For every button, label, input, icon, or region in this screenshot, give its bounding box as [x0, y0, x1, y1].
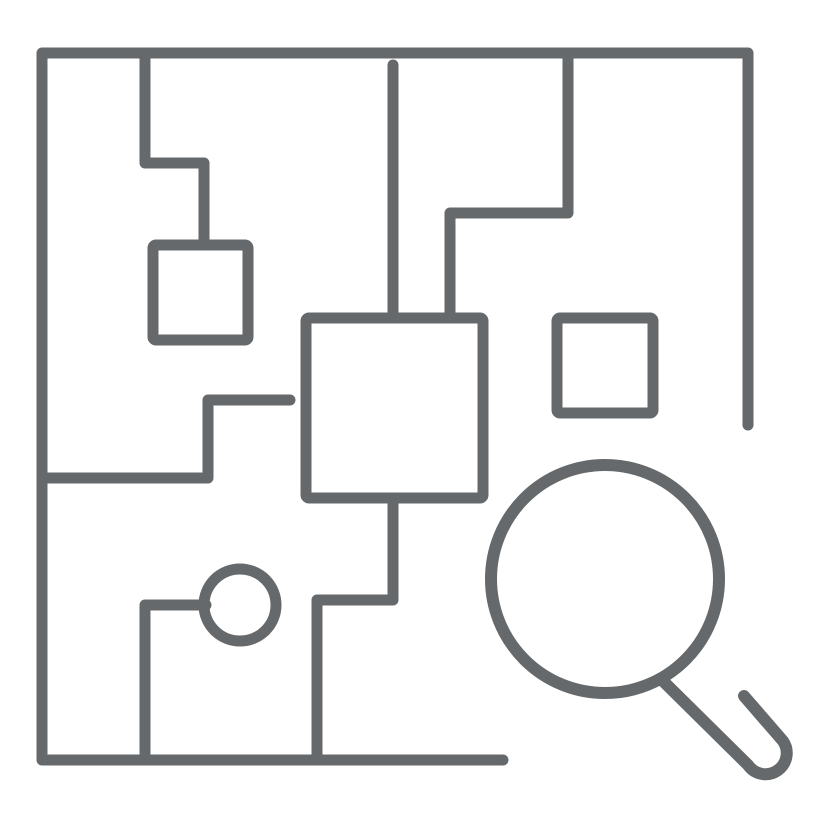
- magnifier-lens-circle: [491, 465, 719, 693]
- center-bottom-step-line: [317, 498, 393, 760]
- left-mid-step-line: [42, 400, 290, 478]
- small-circle-node: [204, 569, 276, 641]
- left-small-square: [153, 245, 248, 340]
- top-left-step-line: [145, 53, 204, 245]
- right-small-square: [557, 318, 653, 413]
- maze-search-icon: [0, 0, 828, 828]
- central-square: [306, 318, 483, 498]
- top-right-step-line: [450, 53, 568, 318]
- bottom-left-step-line: [145, 605, 206, 760]
- icon-canvas: [0, 0, 828, 828]
- magnifier-handle: [663, 681, 787, 774]
